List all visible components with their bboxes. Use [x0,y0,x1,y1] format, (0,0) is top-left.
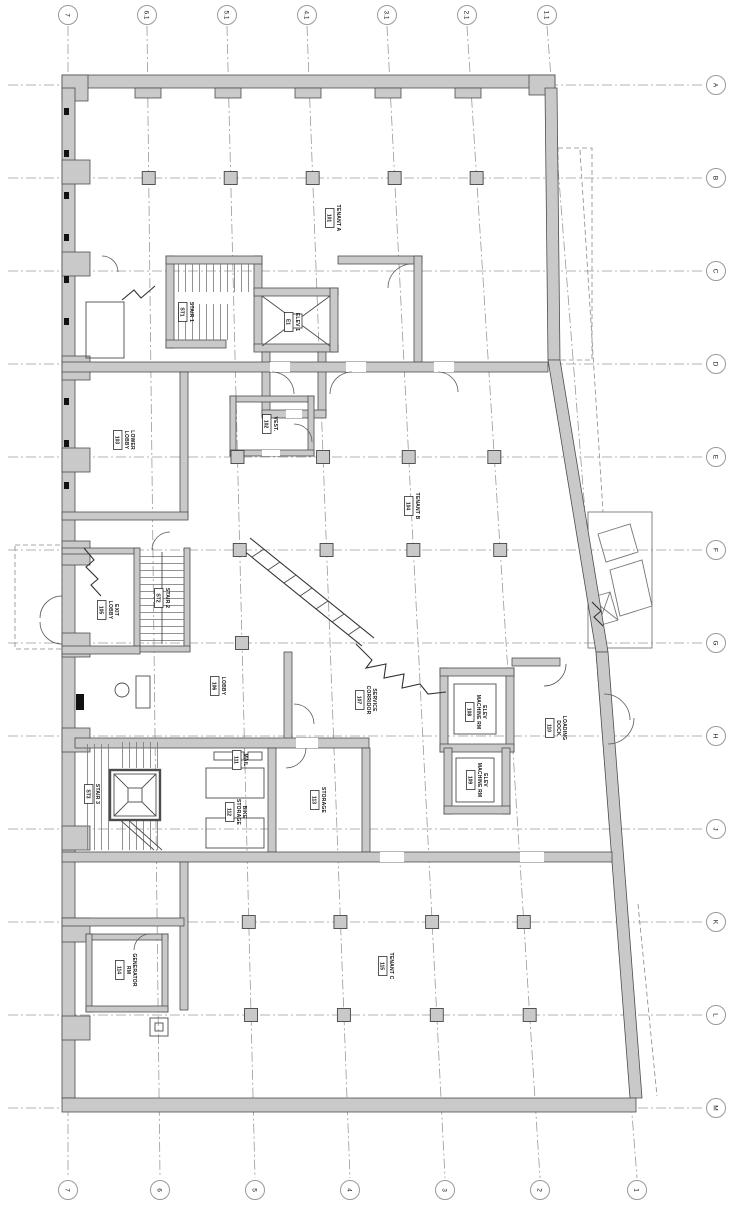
grid-bubble-right-A: A [707,76,726,95]
grid-bubble-right-L-label: L [712,1013,719,1017]
room-name: STAIR 1 [188,302,194,322]
room-name: MACHINE RM [476,763,482,798]
column [494,544,507,557]
grid-bubble-right-H: H [707,727,726,746]
grid-line-col-5.1 [227,26,255,1178]
floor-access-hatch [150,1018,168,1036]
grid-bubble-right-G: G [707,634,726,653]
room-name: RM [125,966,131,974]
west-stair-flight [86,302,124,358]
grid-bubble-right-A-label: A [712,83,719,88]
grid-bubble-right-D-label: D [712,362,719,367]
room-name: MAIL [242,753,248,766]
room-name: CORRIDOR [365,686,371,715]
floor-plan-sheet: TENANT A101STAIR 1ST1ELEV 1E1VEST.102LOW… [0,0,750,1207]
grid-bubble-top-5.1: 5.1 [218,6,237,25]
grid-bubble-right-J-label: J [712,827,719,830]
column [402,451,415,464]
room-number: 106 [211,682,217,691]
wall-equipment-block [76,694,84,710]
grid-bubble-right-F-label: F [712,548,719,552]
elev-machine-1 [454,684,496,734]
room-tag: ELEVMACHINE RM108 [466,695,488,730]
room-name: TENANT B [414,493,420,520]
room-number: 115 [379,962,385,970]
grid-bubble-right-E-label: E [712,455,719,460]
column [233,544,246,557]
room-name: STORAGE [320,787,326,813]
grid-bubble-bottom-4: 4 [341,1181,360,1200]
grid-bubble-right-K-label: K [712,920,719,925]
platform-ramp-2 [610,560,652,616]
column [320,544,333,557]
room-number: 111 [233,756,239,764]
grid-bubble-bottom-1: 1 [628,1181,647,1200]
platform-ramp-1 [598,524,638,562]
room-number: 107 [356,696,362,705]
grid-bubble-right-C-label: C [712,269,719,274]
grid-bubble-bottom-1-label: 1 [633,1188,640,1192]
stair1-upper-flight [174,264,254,292]
room-name: DOCK [555,720,561,736]
mail-counter-2 [248,752,262,760]
stair3-south-flight [116,820,162,850]
grid-bubble-bottom-6-label: 6 [156,1188,163,1192]
grid-bubble-right-J: J [707,820,726,839]
grid-bubble-bottom-5-label: 5 [251,1188,258,1192]
grid-bubble-right-F: F [707,541,726,560]
grid-bubble-right-H-label: H [712,734,719,739]
grid-bubble-right-B: B [707,169,726,188]
room-number: 108 [466,708,472,717]
column [388,172,401,185]
room-number: 114 [116,966,122,974]
grid-bubble-top-7-label: 7 [64,13,71,17]
room-name: STAIR 3 [94,784,100,804]
room-name: STAIR 2 [164,588,170,608]
room-number: E1 [285,319,291,325]
room-tag: BIKESTORAGE112 [226,799,248,825]
room-tag: GENERATORRM114 [116,953,138,986]
grid-bubble-bottom-4-label: 4 [346,1188,353,1192]
room-number: 101 [326,214,332,223]
room-number: ST2 [155,593,161,602]
room-tag: TENANT B104 [405,493,421,520]
column [231,451,244,464]
room-number: 112 [226,808,232,816]
room-name: STORAGE [235,799,241,825]
room-tag: STAIR 2ST2 [155,588,171,608]
grid-bubble-bottom-5: 5 [246,1181,265,1200]
grid-bubble-bottom-2: 2 [531,1181,550,1200]
room-tag: STAIR 1ST1 [179,302,195,322]
column [426,916,439,929]
room-number: 105 [98,606,104,615]
ramp-hatch [252,549,360,635]
column [242,916,255,929]
grid-bubble-bottom-6: 6 [151,1181,170,1200]
grid-bubble-top-3.1-label: 3.1 [383,10,390,19]
column [430,1009,443,1022]
grid-bubble-top-6.1-label: 6.1 [143,10,150,19]
column [235,637,248,650]
room-name: MACHINE RM [475,695,481,730]
column [142,172,155,185]
column [245,1009,258,1022]
grid-bubble-bottom-3-label: 3 [441,1188,448,1192]
room-number: 113 [311,796,317,804]
room-name: VEST. [272,417,278,432]
room-tag: TENANT A101 [326,205,342,232]
room-tag: EXITLOBBY105 [98,601,120,620]
room-tag: ELEV 1E1 [285,313,301,332]
grid-bubble-top-1.1-label: 1.1 [543,10,550,19]
room-number: ST1 [179,307,185,316]
column [517,916,530,929]
grid-bubble-right-G-label: G [712,640,719,645]
grid-bubble-bottom-7-label: 7 [64,1188,71,1192]
grid-bubble-top-7: 7 [59,6,78,25]
room-tag: VEST.102 [263,415,279,434]
grid-bubble-top-2.1-label: 2.1 [463,10,470,19]
grid-line-col-2.1 [467,26,540,1178]
grid-bubble-right-B-label: B [712,176,719,180]
column [488,451,501,464]
column [470,172,483,185]
grid-bubble-right-M: M [707,1099,726,1118]
grid-bubble-right-C: C [707,262,726,281]
room-number: 104 [405,502,411,511]
lobby-desk-stool [115,683,129,697]
elevator-3-shaft [110,770,160,820]
bike-rack-row-1 [206,768,264,798]
stair3-north-flight [116,742,162,768]
room-name: TENANT A [335,205,341,232]
room-name: LOBBY [220,677,226,696]
column [317,451,330,464]
grid-bubble-top-2.1: 2.1 [458,6,477,25]
column [407,544,420,557]
grid-bubble-right-L: L [707,1006,726,1025]
grid-line-col-3.1 [387,26,445,1178]
room-number: 102 [263,420,269,429]
column [224,172,237,185]
room-tags-layer: TENANT A101STAIR 1ST1ELEV 1E1VEST.102LOW… [85,205,568,987]
room-name: LOBBY [123,431,129,450]
room-tag: LOADINGDOCK110 [546,716,568,740]
dashed-property-line [580,150,603,512]
column [523,1009,536,1022]
grid-bubble-top-4.1: 4.1 [298,6,317,25]
lobby-desk [136,676,150,708]
room-tag: LOBBY106 [211,677,227,696]
room-number: 110 [546,724,552,732]
floor-access-hatch-inner [155,1023,163,1031]
column [306,172,319,185]
grid-bubble-bottom-3: 3 [436,1181,455,1200]
grid-bubble-right-D: D [707,355,726,374]
room-tag: TENANT C115 [379,953,395,980]
floor-plan-canvas: TENANT A101STAIR 1ST1ELEV 1E1VEST.102LOW… [0,0,750,1207]
column [337,1009,350,1022]
bike-rack-row-2 [206,818,264,848]
room-tag: ELEVMACHINE RM109 [467,763,489,798]
room-name: LOBBY [107,601,113,620]
room-tag: SERVICECORRIDOR107 [356,686,378,715]
room-tag: LOWERLOBBY103 [114,430,136,450]
room-number: 109 [467,776,473,785]
dashed-siteline [638,904,657,1096]
room-name: ELEV 1 [294,313,300,331]
grid-bubble-top-4.1-label: 4.1 [303,10,310,19]
room-number: 103 [114,436,120,445]
grid-bubble-bottom-7: 7 [59,1181,78,1200]
room-tag: MAIL111 [233,751,249,770]
column [334,916,347,929]
room-tag: STORAGE113 [311,787,327,813]
grid-bubble-top-1.1: 1.1 [538,6,557,25]
room-tag: STAIR 3ST3 [85,784,101,804]
grid-bubble-top-3.1: 3.1 [378,6,397,25]
grid-bubble-right-M-label: M [712,1105,719,1110]
grid-bubble-right-K: K [707,913,726,932]
room-number: ST3 [85,789,91,798]
grid-bubble-top-6.1: 6.1 [138,6,157,25]
grid-bubble-bottom-2-label: 2 [536,1188,543,1192]
grid-bubble-right-E: E [707,448,726,467]
room-name: TENANT C [388,953,394,980]
grid-bubble-top-5.1-label: 5.1 [223,10,230,19]
